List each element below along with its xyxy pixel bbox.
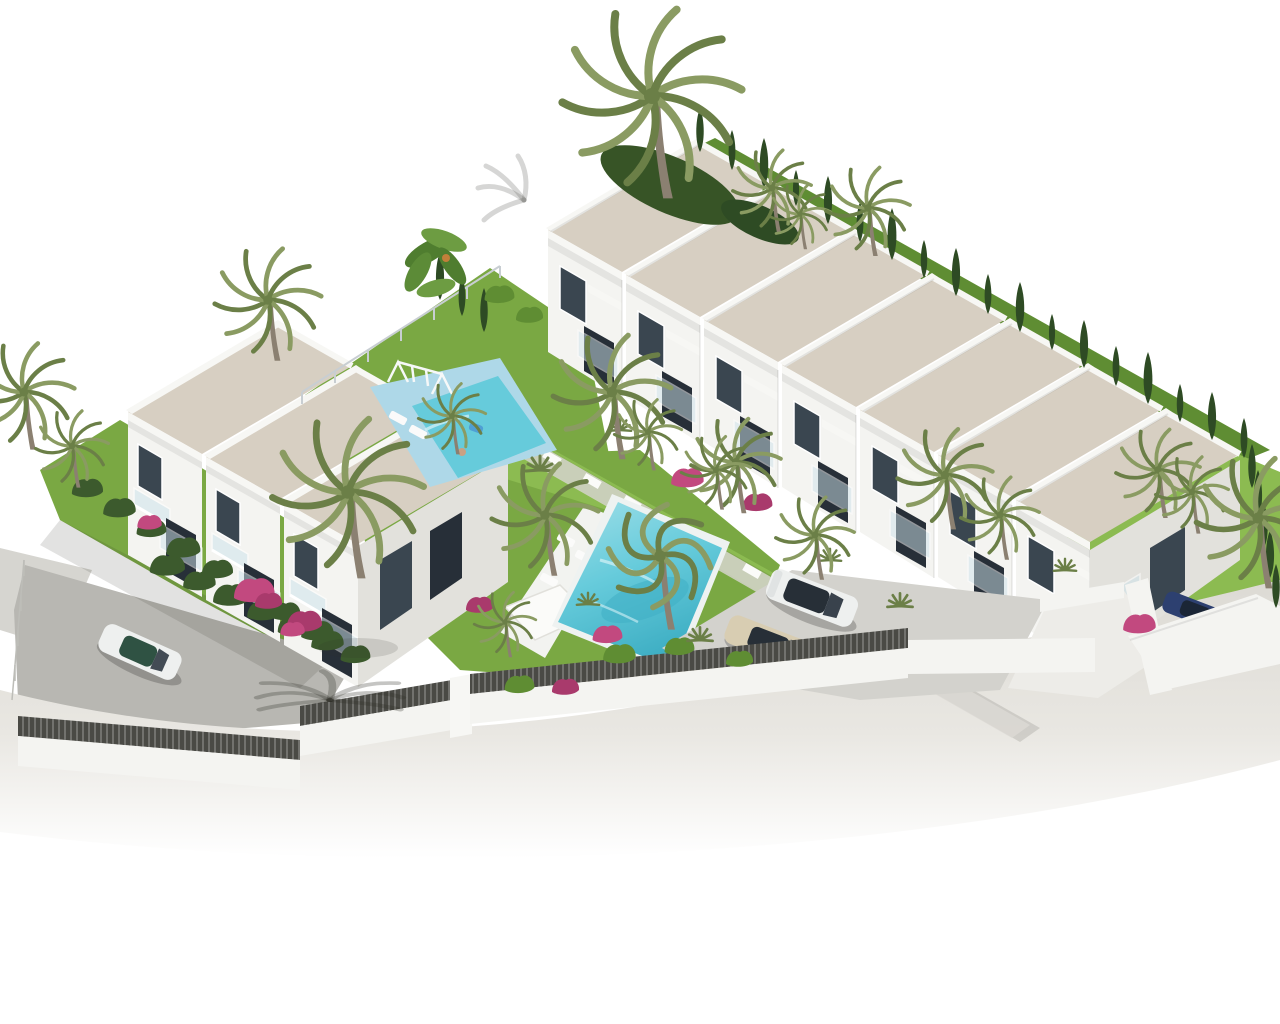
wall-segment xyxy=(908,638,1095,674)
architectural-render: Aerial isometric 3D architectural render… xyxy=(0,0,1280,1024)
wall-pillar xyxy=(450,674,472,738)
render-canvas xyxy=(0,0,1280,1024)
